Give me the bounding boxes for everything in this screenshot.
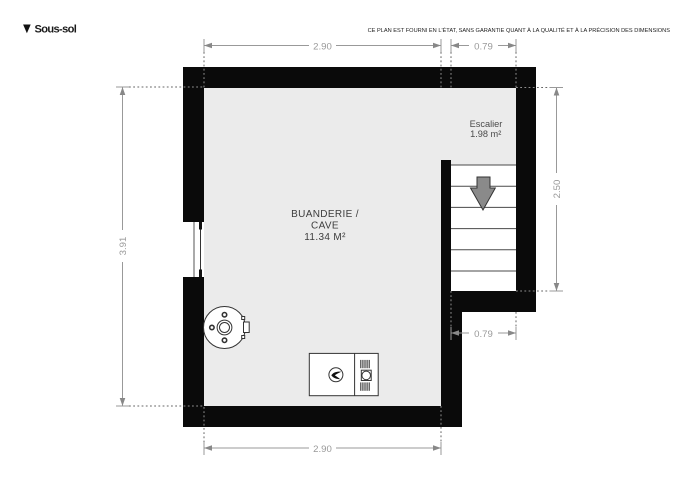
svg-text:1.98 m²: 1.98 m² (470, 129, 501, 139)
svg-text:Sous-sol: Sous-sol (35, 24, 77, 36)
svg-text:2.90: 2.90 (313, 41, 332, 52)
svg-text:Escalier: Escalier (470, 119, 503, 129)
svg-text:CAVE: CAVE (311, 221, 339, 232)
svg-text:0.79: 0.79 (474, 329, 493, 340)
svg-text:3.91: 3.91 (118, 237, 129, 256)
svg-text:2.90: 2.90 (313, 444, 332, 455)
svg-text:CE PLAN EST FOURNI EN L'ÉTAT,: CE PLAN EST FOURNI EN L'ÉTAT, SANS GARAN… (368, 27, 671, 34)
svg-text:2.50: 2.50 (552, 180, 563, 199)
svg-text:11.34 M²: 11.34 M² (304, 232, 346, 243)
svg-text:0.79: 0.79 (474, 41, 493, 52)
svg-text:BUANDERIE /: BUANDERIE / (291, 209, 359, 220)
